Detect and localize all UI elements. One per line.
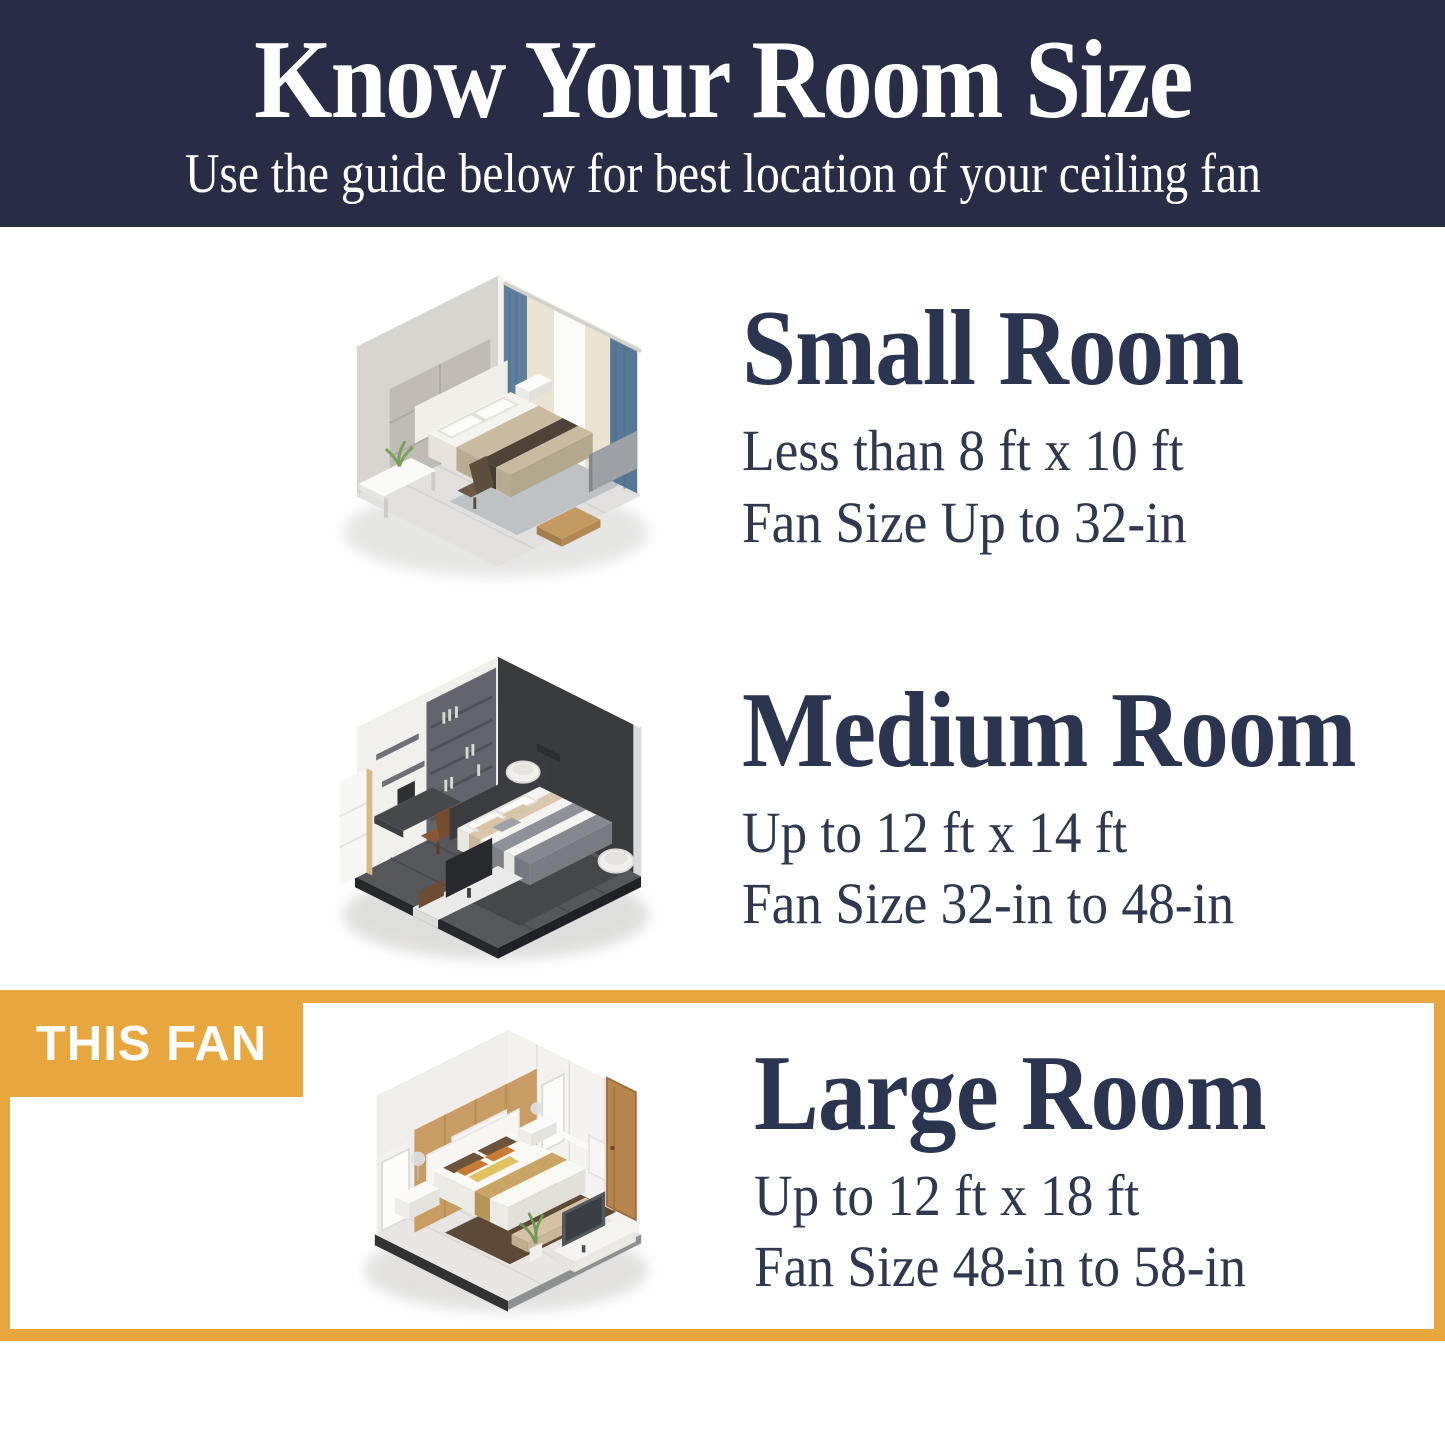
bottom-whitespace <box>0 1341 1445 1445</box>
page-title: Know Your Room Size <box>254 23 1191 137</box>
large-bedroom-isometric <box>306 1004 710 1328</box>
small-room-heading: Small Room <box>742 298 1243 401</box>
this-fan-label: THIS FAN <box>36 1016 267 1072</box>
section-small-room: Small Room Less than 8 ft x 10 ft Fan Si… <box>0 227 1445 616</box>
small-bedroom-isometric <box>298 248 698 596</box>
large-room-text: Large Room Up to 12 ft x 18 ft Fan Size … <box>754 1033 1323 1299</box>
large-room-size-range: Up to 12 ft x 18 ft <box>754 1164 1277 1228</box>
medium-room-fan-size: Fan Size 32-in to 48-in <box>742 872 1369 936</box>
small-room-text: Small Room Less than 8 ft x 10 ft Fan Si… <box>742 288 1299 554</box>
medium-bedroom-isometric <box>298 629 698 977</box>
medium-room-size-range: Up to 12 ft x 14 ft <box>742 801 1369 865</box>
small-room-fan-size: Fan Size Up to 32-in <box>742 491 1254 555</box>
large-room-illustration <box>306 1004 710 1328</box>
small-room-illustration <box>298 248 698 596</box>
medium-room-text: Medium Room Up to 12 ft x 14 ft Fan Size… <box>742 670 1424 936</box>
page-subtitle: Use the guide below for best location of… <box>185 145 1261 204</box>
header-banner: Know Your Room Size Use the guide below … <box>0 0 1445 227</box>
medium-room-illustration <box>298 629 698 977</box>
small-room-size-range: Less than 8 ft x 10 ft <box>742 419 1254 483</box>
large-room-fan-size: Fan Size 48-in to 58-in <box>754 1235 1277 1299</box>
section-large-room-highlighted: THIS FAN <box>0 990 1445 1341</box>
door <box>603 1076 635 1220</box>
section-medium-room: Medium Room Up to 12 ft x 14 ft Fan Size… <box>0 616 1445 990</box>
wardrobe <box>339 768 372 886</box>
infographic-page: Know Your Room Size Use the guide below … <box>0 0 1445 1445</box>
this-fan-badge: THIS FAN <box>0 990 303 1097</box>
large-room-heading: Large Room <box>754 1043 1266 1146</box>
medium-room-heading: Medium Room <box>742 680 1356 783</box>
